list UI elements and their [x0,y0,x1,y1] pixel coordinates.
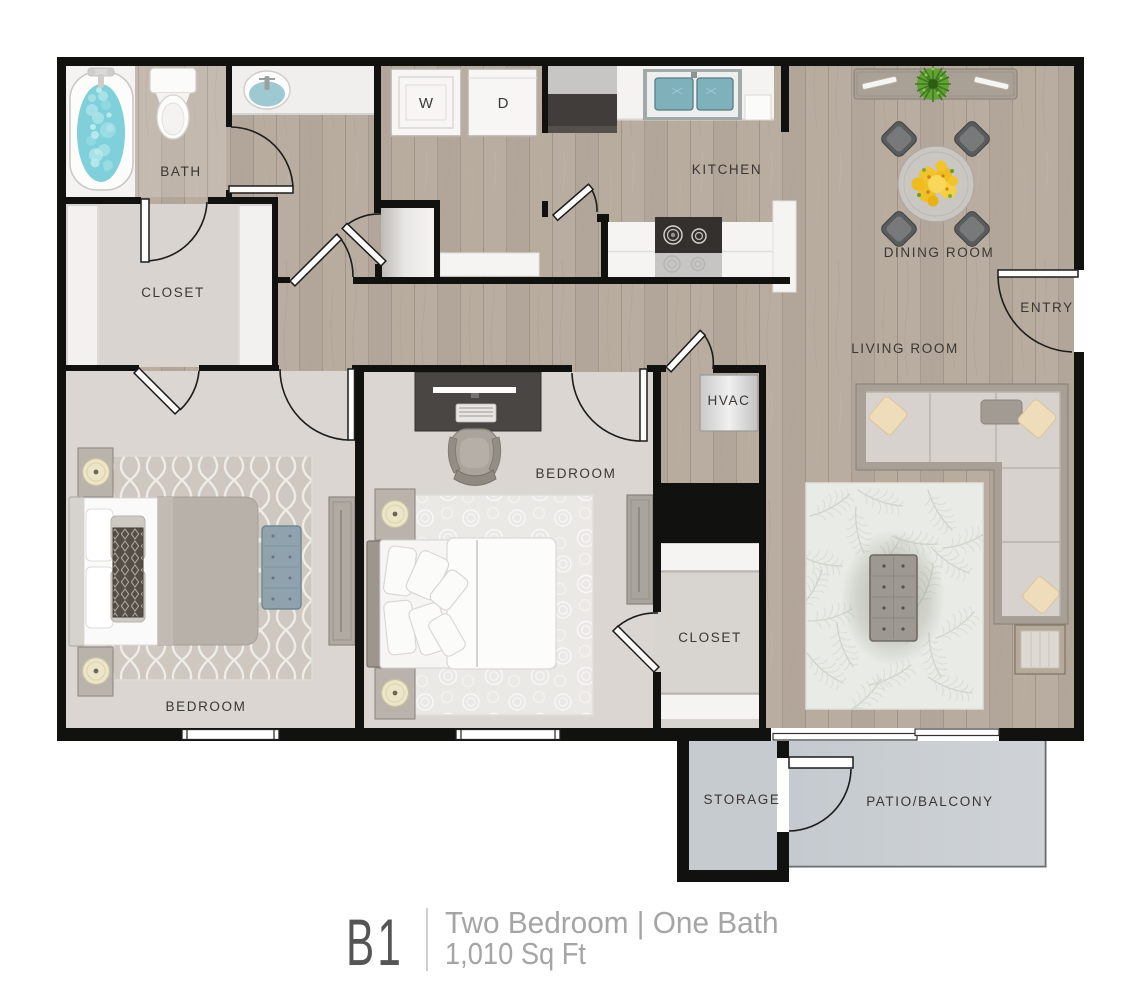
svg-text:LIVING ROOM: LIVING ROOM [851,341,959,356]
svg-text:Two Bedroom | One Bath: Two Bedroom | One Bath [445,905,778,940]
svg-text:STORAGE: STORAGE [704,792,781,807]
svg-text:CLOSET: CLOSET [141,285,205,300]
svg-text:PATIO/BALCONY: PATIO/BALCONY [866,794,994,809]
svg-text:BEDROOM: BEDROOM [536,466,617,481]
svg-text:B1: B1 [346,905,404,979]
svg-text:D: D [498,95,509,112]
svg-text:1,010 Sq Ft: 1,010 Sq Ft [445,937,586,971]
svg-text:CLOSET: CLOSET [678,630,742,645]
svg-text:W: W [419,95,434,112]
svg-text:HVAC: HVAC [708,393,751,408]
svg-text:ENTRY: ENTRY [1020,300,1074,315]
svg-text:KITCHEN: KITCHEN [692,162,762,177]
svg-text:DINING ROOM: DINING ROOM [884,245,995,260]
svg-text:BATH: BATH [160,164,201,179]
svg-text:BEDROOM: BEDROOM [166,699,247,714]
